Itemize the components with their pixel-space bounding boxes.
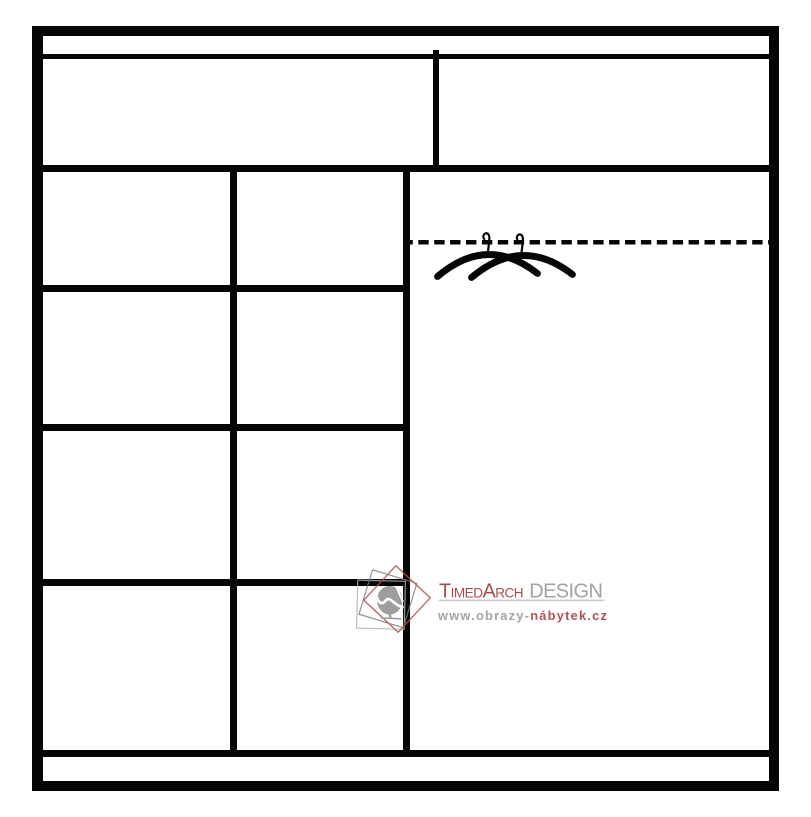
svg-text:www.obrazy-nábytek.cz: www.obrazy-nábytek.cz [437, 608, 608, 623]
